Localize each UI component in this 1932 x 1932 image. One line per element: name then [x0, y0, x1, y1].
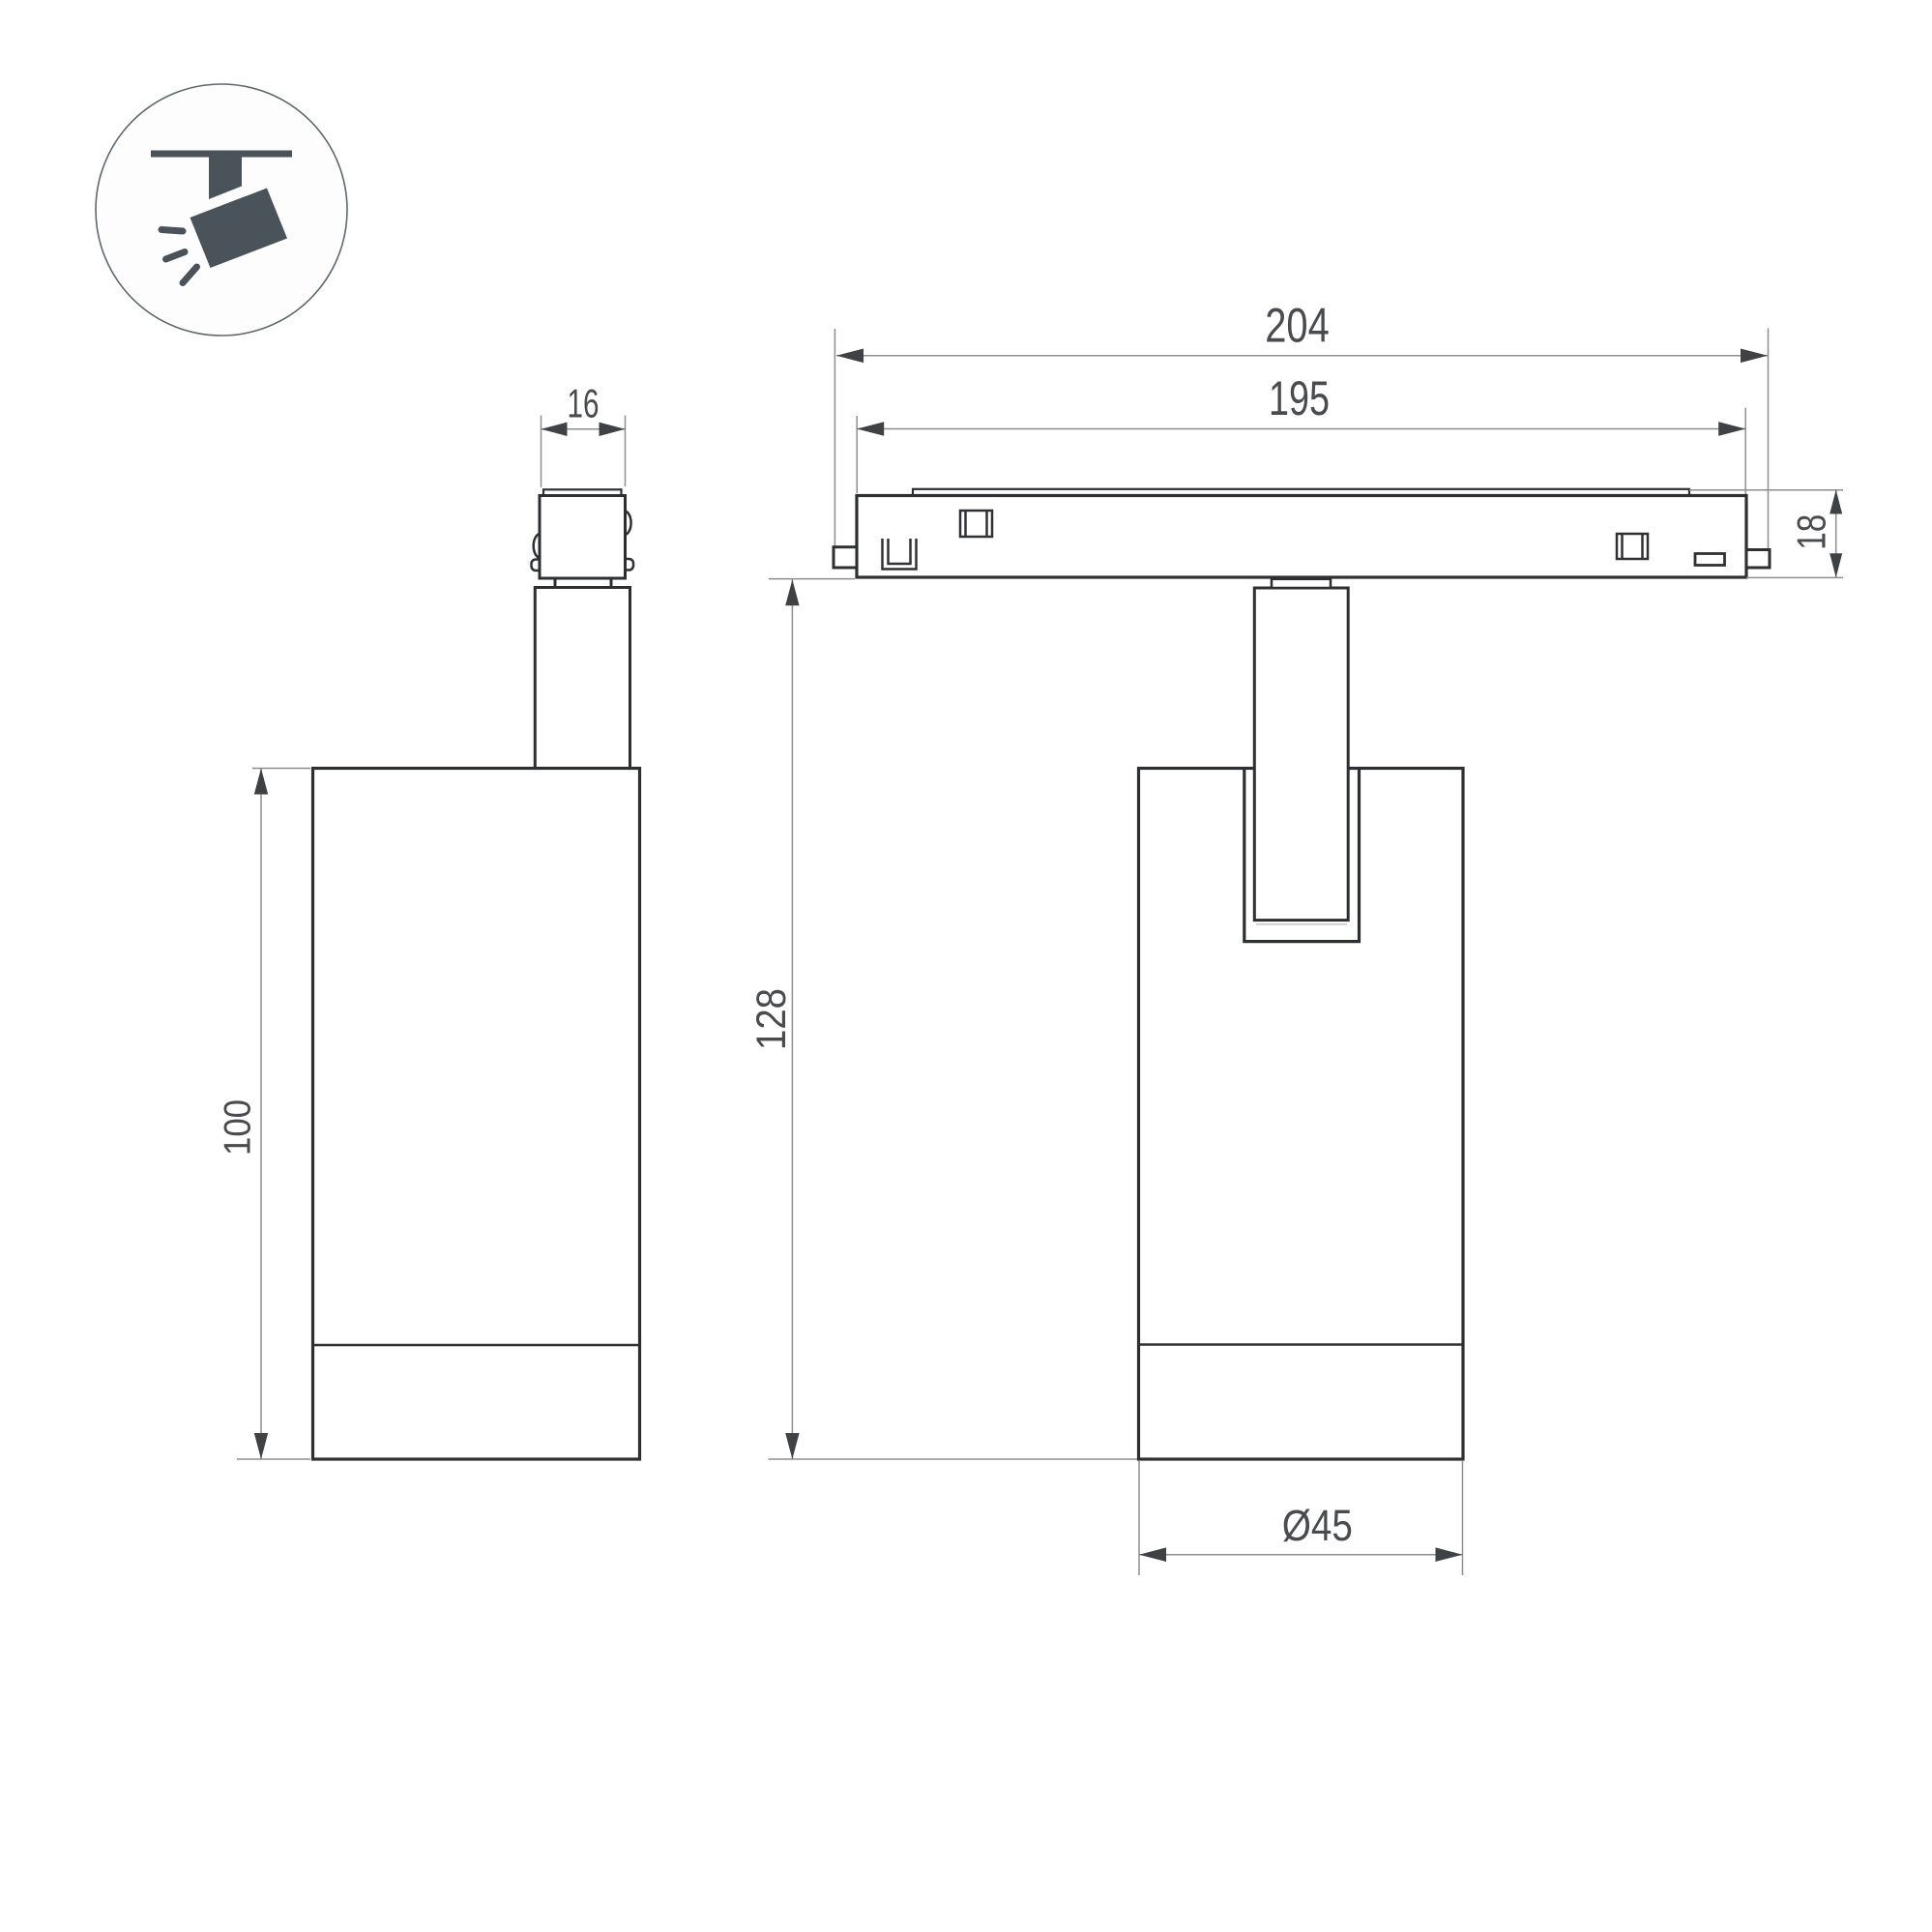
- svg-text:195: 195: [1269, 371, 1330, 425]
- svg-text:16: 16: [568, 381, 600, 426]
- svg-text:Ø45: Ø45: [1282, 1501, 1353, 1550]
- svg-text:128: 128: [749, 988, 795, 1050]
- svg-text:204: 204: [1265, 299, 1330, 353]
- svg-text:18: 18: [1788, 514, 1833, 550]
- svg-text:100: 100: [218, 1099, 259, 1156]
